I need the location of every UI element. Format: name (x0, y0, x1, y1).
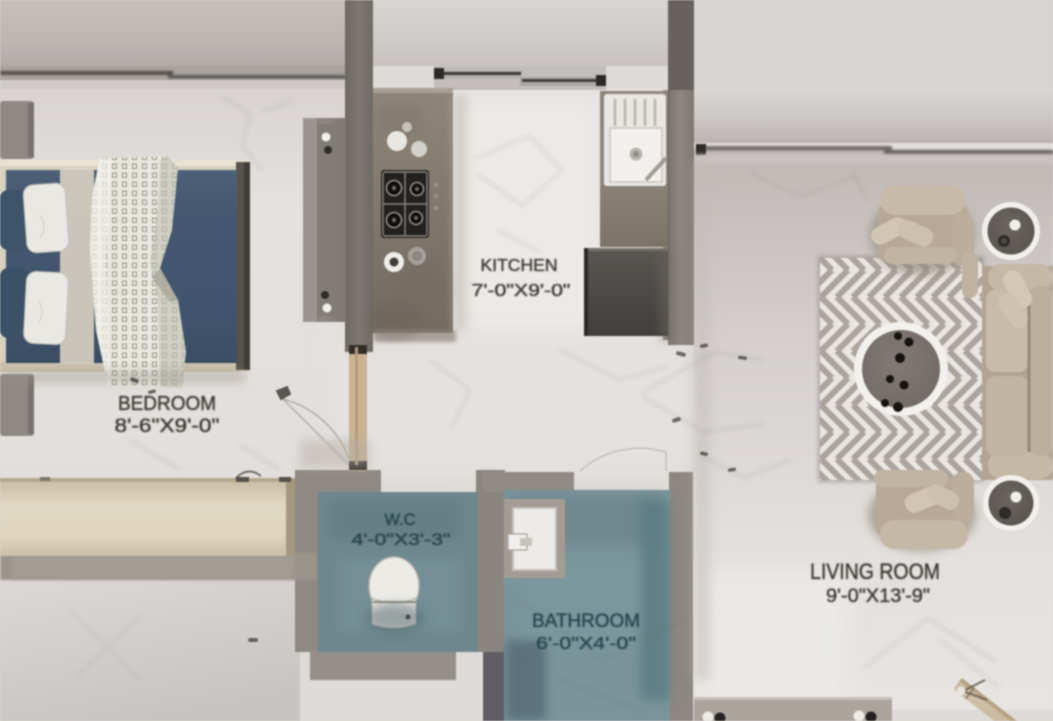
svg-text:7'-0"X9'-0": 7'-0"X9'-0" (472, 280, 571, 300)
svg-text:8'-6"X9'-0": 8'-6"X9'-0" (115, 416, 220, 437)
svg-text:6'-0"X4'-0": 6'-0"X4'-0" (536, 633, 636, 653)
svg-text:LIVING ROOM: LIVING ROOM (810, 559, 940, 584)
svg-text:9'-0"X13'-9": 9'-0"X13'-9" (826, 586, 930, 607)
svg-text:4'-0"X3'-3": 4'-0"X3'-3" (352, 530, 451, 549)
svg-text:BEDROOM: BEDROOM (118, 393, 216, 415)
svg-text:BATHROOM: BATHROOM (532, 611, 640, 632)
svg-text:KITCHEN: KITCHEN (481, 255, 558, 275)
svg-text:W.C: W.C (385, 510, 416, 529)
